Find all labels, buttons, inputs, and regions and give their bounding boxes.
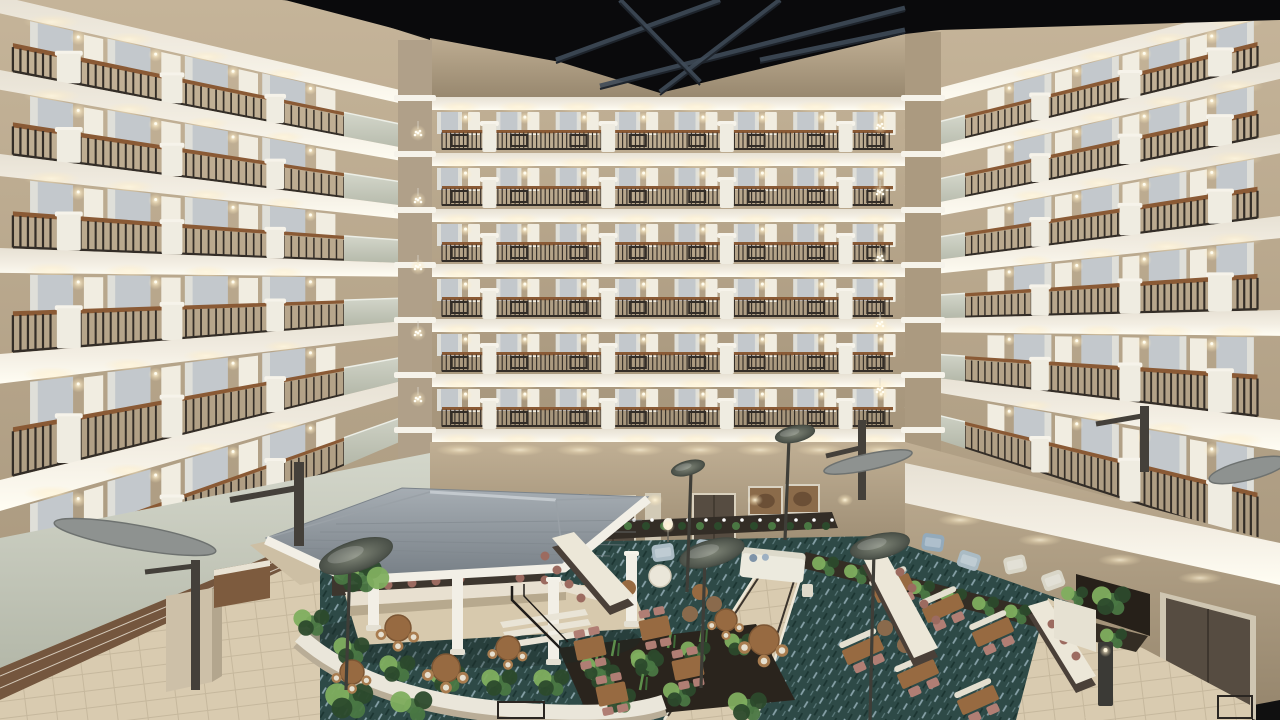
lily-foliage bbox=[696, 522, 704, 530]
sconce-glow bbox=[747, 494, 763, 506]
artwork-figure bbox=[793, 492, 812, 507]
window-curtain bbox=[1247, 159, 1254, 190]
pilaster bbox=[1208, 275, 1232, 311]
fascia-light-glow bbox=[497, 213, 541, 225]
wall-sconce-icon bbox=[702, 116, 705, 119]
snake-plant-leaf bbox=[618, 643, 619, 656]
gazebo-column bbox=[452, 572, 463, 654]
pilaster bbox=[720, 401, 734, 429]
peace-lily-flower bbox=[830, 518, 834, 522]
wall-sconce-icon bbox=[1008, 338, 1011, 341]
round-dining-table bbox=[715, 609, 737, 631]
pilaster bbox=[162, 398, 183, 438]
window-curtain bbox=[185, 124, 193, 152]
counter-stool bbox=[553, 566, 562, 575]
pilaster bbox=[839, 124, 853, 152]
guestroom-door bbox=[239, 204, 258, 232]
chair-seat-pad bbox=[520, 654, 525, 659]
wall-sconce-icon bbox=[154, 53, 157, 56]
chair-seat-pad bbox=[490, 651, 495, 656]
wall-sconce-icon bbox=[232, 280, 235, 283]
corner-cap bbox=[901, 95, 945, 101]
railing-wood-cap bbox=[442, 407, 893, 410]
wall-sconce-icon bbox=[1075, 130, 1078, 133]
pilaster bbox=[1031, 156, 1049, 182]
pilaster bbox=[1120, 461, 1141, 502]
chandelier-bulb bbox=[877, 388, 880, 391]
fascia-light-glow bbox=[438, 323, 482, 335]
column-base bbox=[450, 649, 465, 655]
tropical-plant bbox=[812, 557, 826, 571]
chandelier-bulb bbox=[876, 325, 879, 328]
counter-stool bbox=[541, 552, 550, 561]
corner-cap bbox=[394, 207, 436, 213]
pilaster bbox=[1208, 192, 1232, 224]
wall-sconce-icon bbox=[309, 280, 312, 283]
pilaster bbox=[839, 291, 853, 319]
chandelier-bulb bbox=[419, 130, 422, 133]
wall-sconce-icon bbox=[154, 474, 157, 477]
tropical-plant bbox=[1004, 605, 1018, 619]
fascia-light-glow bbox=[675, 101, 719, 113]
window-curtain bbox=[437, 389, 441, 411]
window-curtain bbox=[108, 372, 116, 413]
wall-sconce-icon bbox=[77, 280, 80, 283]
fascia-light-glow bbox=[675, 378, 719, 390]
counter-stool bbox=[908, 584, 917, 593]
pilaster bbox=[57, 215, 81, 251]
window-curtain bbox=[1247, 242, 1254, 277]
wall-sconce-icon bbox=[523, 228, 526, 231]
chandelier-bulb bbox=[882, 193, 885, 196]
chandelier-bulb bbox=[420, 400, 423, 403]
window-curtain bbox=[1112, 117, 1119, 143]
window-curtain bbox=[1247, 337, 1254, 376]
round-dining-table bbox=[432, 654, 460, 682]
window-curtain bbox=[1247, 21, 1254, 46]
wall-sconce-icon bbox=[232, 70, 235, 73]
peace-lily-flower bbox=[650, 518, 654, 522]
pilaster bbox=[482, 180, 496, 208]
wall-sconce-icon bbox=[702, 338, 705, 341]
fascia-light-glow bbox=[616, 378, 660, 390]
wall-sconce-icon bbox=[642, 172, 645, 175]
tropical-plant bbox=[486, 680, 502, 696]
fascia-light-glow bbox=[675, 213, 719, 225]
pilaster bbox=[601, 180, 615, 208]
fascia-light-glow bbox=[1018, 534, 1062, 546]
chandelier-bulb bbox=[877, 190, 880, 193]
pilaster bbox=[57, 54, 81, 83]
wall-sconce-icon bbox=[702, 393, 705, 396]
column-base bbox=[546, 659, 561, 665]
corner-cap bbox=[901, 427, 945, 433]
pouf-stool bbox=[877, 620, 893, 636]
fascia-light-glow bbox=[616, 101, 660, 113]
soffit-light-glow bbox=[616, 444, 664, 456]
window-curtain bbox=[437, 224, 441, 246]
fascia-light-glow bbox=[616, 213, 660, 225]
railing-base bbox=[442, 260, 893, 262]
pouf-stool bbox=[682, 606, 698, 622]
window-curtain bbox=[30, 181, 38, 216]
lily-foliage bbox=[678, 522, 686, 530]
chandelier-bulb bbox=[420, 268, 423, 271]
wall-sconce-icon bbox=[642, 228, 645, 231]
chair-seat-pad bbox=[737, 625, 742, 630]
tropical-plant bbox=[1017, 614, 1027, 624]
wall-sconce-icon bbox=[154, 280, 157, 283]
tropical-plant bbox=[1097, 598, 1114, 615]
fascia-light-glow bbox=[938, 514, 982, 526]
fascia-light-glow bbox=[556, 101, 600, 113]
chair-seat-pad bbox=[724, 633, 729, 638]
railing-wood-cap bbox=[442, 242, 893, 245]
round-coffee-table bbox=[649, 565, 671, 587]
chandelier-bulb bbox=[415, 131, 418, 134]
corner-cap bbox=[394, 317, 436, 323]
chandelier-bulb bbox=[881, 321, 884, 324]
chandelier-bulb bbox=[414, 334, 417, 337]
counter-stool bbox=[920, 600, 929, 609]
chandelier-bulb bbox=[876, 193, 879, 196]
fascia-light-glow bbox=[794, 101, 838, 113]
wall-sconce-icon bbox=[880, 228, 883, 231]
fascia-light-glow bbox=[794, 213, 838, 225]
tropical-plant bbox=[332, 698, 353, 719]
window-curtain bbox=[185, 362, 193, 398]
pilaster bbox=[482, 346, 496, 374]
pilaster bbox=[839, 236, 853, 264]
chair-seat-pad bbox=[505, 662, 510, 667]
tropical-plant bbox=[857, 574, 867, 584]
pilaster bbox=[266, 230, 284, 258]
pilaster bbox=[482, 236, 496, 264]
wall-sconce-icon bbox=[1008, 270, 1011, 273]
fascia-light-glow bbox=[556, 213, 600, 225]
chandelier-bulb bbox=[876, 127, 879, 130]
fascia-light-glow bbox=[853, 213, 897, 225]
window-curtain bbox=[1180, 172, 1187, 201]
tropical-plant bbox=[972, 597, 986, 611]
window-curtain bbox=[437, 168, 441, 190]
fascia-light-glow bbox=[735, 323, 779, 335]
wall-sconce-icon bbox=[583, 228, 586, 231]
tropical-plant bbox=[367, 567, 390, 590]
tropical-plant bbox=[384, 666, 400, 682]
lily-foliage bbox=[750, 522, 758, 530]
chandelier-bulb bbox=[419, 330, 422, 333]
counter-stool bbox=[577, 594, 586, 603]
pilaster bbox=[162, 305, 183, 340]
window-curtain bbox=[1180, 102, 1187, 129]
wall-sconce-icon bbox=[309, 213, 312, 216]
fascia-light-glow bbox=[735, 378, 779, 390]
fascia-light-glow bbox=[438, 213, 482, 225]
fascia-light-glow bbox=[616, 268, 660, 280]
wall-sconce-icon bbox=[309, 427, 312, 430]
chair-seat-pad bbox=[761, 658, 768, 665]
wall-sconce-icon bbox=[820, 338, 823, 341]
fascia-light-glow bbox=[794, 157, 838, 169]
chandelier-bulb bbox=[415, 331, 418, 334]
atrium-photo bbox=[0, 0, 1280, 720]
railing-base bbox=[442, 425, 893, 427]
wall-sconce-icon bbox=[1210, 99, 1213, 102]
tropical-plant bbox=[825, 566, 835, 576]
chandelier-bulb bbox=[420, 201, 423, 204]
guestroom-door bbox=[84, 188, 103, 221]
fascia-light-glow bbox=[438, 378, 482, 390]
pilaster bbox=[57, 130, 81, 163]
pilaster bbox=[266, 97, 284, 123]
sconce-glow bbox=[837, 494, 853, 506]
chandelier-bulb bbox=[419, 264, 422, 267]
chandelier-bulb bbox=[419, 396, 422, 399]
fascia-light-glow bbox=[616, 157, 660, 169]
tropical-plant bbox=[390, 691, 411, 712]
pilaster bbox=[1208, 371, 1232, 412]
lily-foliage bbox=[804, 522, 812, 530]
window-curtain bbox=[30, 381, 38, 426]
armchair bbox=[651, 543, 675, 563]
fascia-light-glow bbox=[735, 268, 779, 280]
wall-sconce-icon bbox=[702, 283, 705, 286]
counter-stool bbox=[565, 580, 574, 589]
fascia-light-glow bbox=[794, 268, 838, 280]
lily-foliage bbox=[732, 522, 740, 530]
chandelier-bulb bbox=[415, 198, 418, 201]
tropical-plant bbox=[298, 620, 314, 636]
round-dining-table bbox=[385, 615, 411, 641]
tropical-plant bbox=[1100, 629, 1114, 643]
peace-lily-flower bbox=[794, 518, 798, 522]
peace-lily-flower bbox=[740, 518, 744, 522]
soffit-light-glow bbox=[556, 444, 604, 456]
chandelier-bulb bbox=[414, 400, 417, 403]
wall-sconce-icon bbox=[642, 338, 645, 341]
chandelier-bulb bbox=[881, 387, 884, 390]
corner-cap bbox=[394, 95, 436, 101]
wall-sconce-icon bbox=[761, 393, 764, 396]
chandelier-bulb bbox=[415, 265, 418, 268]
snake-plant-leaf bbox=[674, 635, 675, 648]
fascia-light-glow bbox=[794, 323, 838, 335]
wall-sconce-icon bbox=[880, 338, 883, 341]
wall-sconce-icon bbox=[583, 172, 586, 175]
railing-base bbox=[442, 370, 893, 372]
window-curtain bbox=[30, 275, 38, 313]
chandelier-bulb bbox=[882, 325, 885, 328]
armchair bbox=[921, 533, 945, 553]
wall-sconce-icon bbox=[464, 283, 467, 286]
fascia-light-glow bbox=[556, 268, 600, 280]
window-curtain bbox=[185, 457, 193, 496]
chandelier-bulb bbox=[882, 127, 885, 130]
chandelier-bulb bbox=[881, 255, 884, 258]
wall-sconce-icon bbox=[1075, 195, 1078, 198]
pilaster bbox=[1031, 439, 1049, 473]
peace-lily-flower bbox=[704, 518, 708, 522]
chair-seat-pad bbox=[334, 675, 339, 680]
wall-sconce-icon bbox=[232, 362, 235, 365]
lily-foliage bbox=[642, 522, 650, 530]
chandelier-bulb bbox=[881, 189, 884, 192]
counter-stool bbox=[896, 568, 905, 577]
wall-sconce-icon bbox=[77, 382, 80, 385]
pilaster bbox=[1120, 137, 1141, 164]
pilaster bbox=[57, 308, 81, 348]
window-curtain bbox=[1112, 184, 1119, 212]
wall-sconce-icon bbox=[154, 372, 157, 375]
wall-sconce-icon bbox=[523, 172, 526, 175]
soffit-light-glow bbox=[676, 444, 724, 456]
fascia-light-glow bbox=[556, 378, 600, 390]
chandelier-bulb bbox=[420, 134, 423, 137]
table-lamp-glow bbox=[661, 519, 675, 533]
corner-cap bbox=[394, 151, 436, 157]
guestroom-door bbox=[988, 269, 1005, 294]
wall-sconce-icon bbox=[1008, 145, 1011, 148]
wall-sconce-icon bbox=[642, 283, 645, 286]
wall-sconce-icon bbox=[464, 172, 467, 175]
corner-cap bbox=[901, 317, 945, 323]
wall-sconce-icon bbox=[1143, 183, 1146, 186]
fascia-light-glow bbox=[675, 157, 719, 169]
peace-lily-flower bbox=[722, 518, 726, 522]
wall-sconce-icon bbox=[702, 228, 705, 231]
chandelier-bulb bbox=[877, 322, 880, 325]
window-curtain bbox=[185, 197, 193, 227]
wall-sconce-icon bbox=[820, 228, 823, 231]
tropical-plant bbox=[538, 680, 554, 696]
pilaster bbox=[1208, 117, 1232, 146]
window-curtain bbox=[1112, 56, 1119, 80]
pilaster bbox=[720, 180, 734, 208]
fascia-light-glow bbox=[735, 213, 779, 225]
wall-sconce-icon bbox=[820, 172, 823, 175]
pilaster bbox=[1120, 73, 1141, 98]
window-curtain bbox=[1112, 424, 1119, 461]
fascia-light-glow bbox=[675, 323, 719, 335]
wall-sconce-icon bbox=[1210, 251, 1213, 254]
window-curtain bbox=[1180, 249, 1187, 281]
wall-sconce-icon bbox=[1008, 86, 1011, 89]
atrium-scene bbox=[0, 0, 1280, 720]
wall-sconce-icon bbox=[1210, 35, 1213, 38]
pilaster bbox=[601, 291, 615, 319]
chair-seat-pad bbox=[779, 647, 786, 654]
wall-sconce-icon bbox=[761, 116, 764, 119]
chair-seat-pad bbox=[425, 672, 431, 678]
wall-sconce-icon bbox=[232, 135, 235, 138]
chair-seat-pad bbox=[741, 644, 748, 651]
window-curtain bbox=[185, 56, 193, 82]
pilaster bbox=[1031, 360, 1049, 391]
sconce-glow bbox=[647, 494, 663, 506]
wall-sconce-icon bbox=[761, 283, 764, 286]
chair-seat-pad bbox=[364, 678, 369, 683]
wall-sconce-icon bbox=[1075, 264, 1078, 267]
c-table bbox=[802, 584, 813, 597]
railing-wood-cap bbox=[442, 186, 893, 189]
fascia-light-glow bbox=[853, 268, 897, 280]
fascia-light-glow bbox=[556, 323, 600, 335]
column-pillar bbox=[166, 588, 212, 692]
chandelier-bulb bbox=[881, 123, 884, 126]
pilaster bbox=[839, 180, 853, 208]
fascia-light-glow bbox=[497, 101, 541, 113]
guestroom-door bbox=[1055, 262, 1072, 290]
soffit-light-glow bbox=[736, 444, 784, 456]
wall-sconce-icon bbox=[1075, 422, 1078, 425]
chandelier-bulb bbox=[420, 334, 423, 337]
chandelier-bulb bbox=[415, 397, 418, 400]
pilaster bbox=[57, 416, 81, 463]
wall-sconce-icon bbox=[464, 228, 467, 231]
wall-sconce-icon bbox=[1143, 115, 1146, 118]
wall-sconce-icon bbox=[642, 393, 645, 396]
fascia-light-glow bbox=[735, 101, 779, 113]
tropical-plant bbox=[1061, 587, 1075, 601]
counter-stool bbox=[932, 616, 941, 625]
window-curtain bbox=[437, 112, 441, 134]
wall-sconce-icon bbox=[1075, 339, 1078, 342]
guestroom-door bbox=[1055, 336, 1072, 366]
soffit-light-glow bbox=[436, 444, 484, 456]
railing-wood-cap bbox=[442, 130, 893, 133]
chandelier-bulb bbox=[877, 256, 880, 259]
wall-sconce-icon bbox=[880, 172, 883, 175]
pilaster bbox=[720, 291, 734, 319]
peace-lily-flower bbox=[758, 518, 762, 522]
wall-sconce-icon bbox=[1210, 342, 1213, 345]
window-curtain bbox=[108, 39, 116, 67]
pilaster bbox=[266, 379, 284, 412]
fascia-light-glow bbox=[853, 157, 897, 169]
window-curtain bbox=[1247, 86, 1254, 114]
window-curtain bbox=[108, 110, 116, 140]
chandelier-bulb bbox=[414, 134, 417, 137]
window-curtain bbox=[1112, 336, 1119, 368]
peace-lily-flower bbox=[776, 518, 780, 522]
fascia-light-glow bbox=[438, 268, 482, 280]
pilaster bbox=[482, 401, 496, 429]
wall-sconce-icon bbox=[761, 172, 764, 175]
chandelier-bulb bbox=[419, 197, 422, 200]
guestroom-door bbox=[84, 277, 103, 313]
window-curtain bbox=[108, 189, 116, 221]
window-curtain bbox=[1180, 336, 1187, 372]
wall-sconce-icon bbox=[154, 198, 157, 201]
wall-sconce-icon bbox=[309, 87, 312, 90]
wall-sconce-icon bbox=[1143, 257, 1146, 260]
pilaster bbox=[720, 236, 734, 264]
railing-base bbox=[442, 148, 893, 150]
wall-sconce-icon bbox=[1008, 410, 1011, 413]
railing-wood-cap bbox=[442, 352, 893, 355]
pouf-stool bbox=[706, 596, 722, 612]
wall-sconce-icon bbox=[523, 116, 526, 119]
pilaster bbox=[1120, 281, 1141, 313]
pilaster bbox=[720, 346, 734, 374]
pilaster bbox=[1208, 50, 1232, 76]
corner-cap bbox=[394, 427, 436, 433]
wall-sconce-icon bbox=[464, 116, 467, 119]
guestroom-door bbox=[988, 335, 1005, 361]
fascia-light-glow bbox=[497, 323, 541, 335]
chair-seat-pad bbox=[709, 623, 714, 628]
